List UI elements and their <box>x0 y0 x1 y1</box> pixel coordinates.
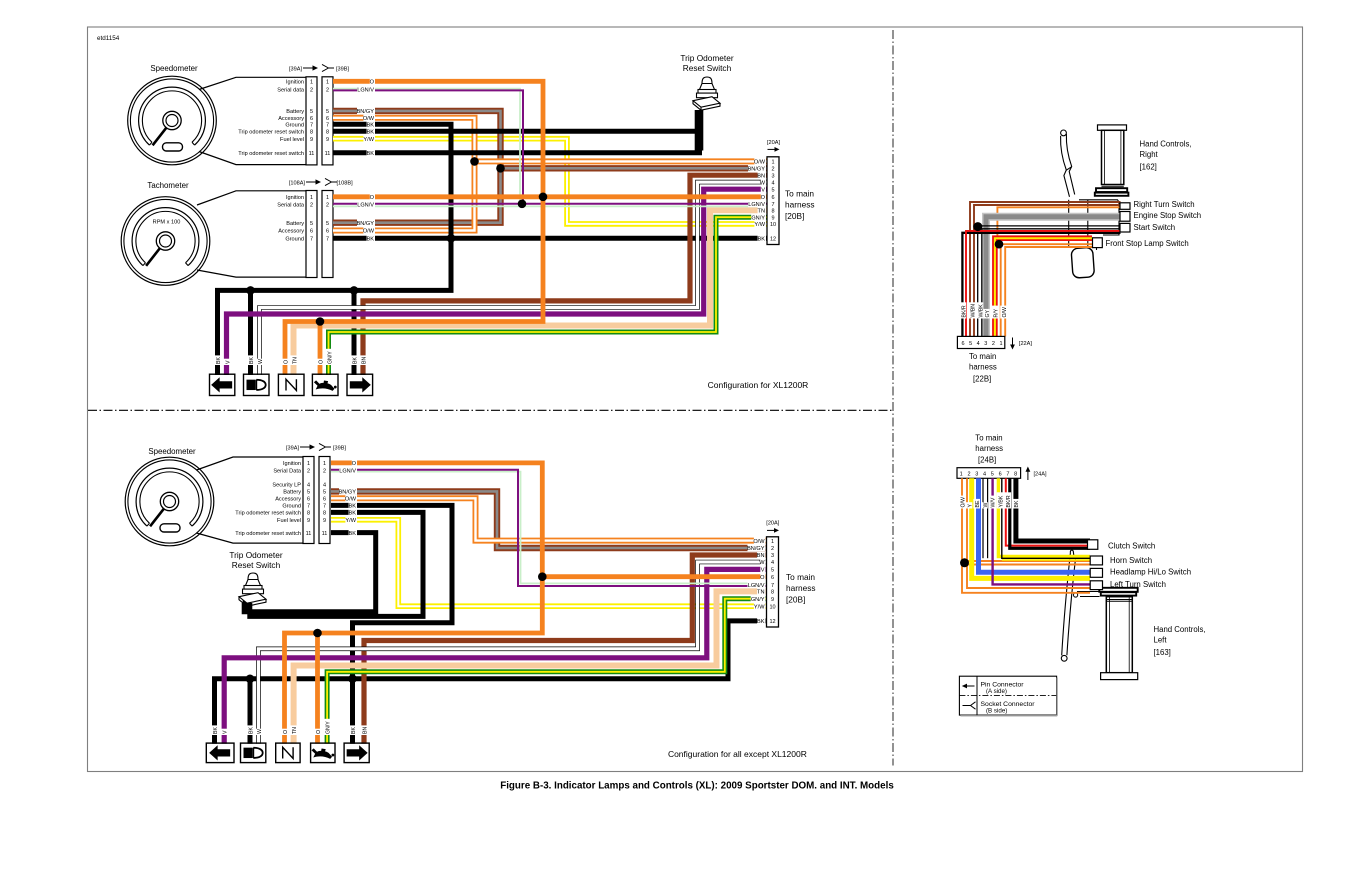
svg-text:BK: BK <box>248 727 254 734</box>
svg-text:[22A]: [22A] <box>1019 341 1033 347</box>
svg-text:Serial data: Serial data <box>277 88 305 94</box>
svg-text:8: 8 <box>771 208 774 214</box>
svg-text:Security LP: Security LP <box>272 483 301 489</box>
svg-text:[162]: [162] <box>1140 163 1157 172</box>
svg-text:2: 2 <box>326 88 329 94</box>
svg-text:10: 10 <box>770 222 776 228</box>
svg-text:[39A]: [39A] <box>286 445 300 451</box>
svg-text:O/W: O/W <box>345 497 357 503</box>
svg-text:Fuel level: Fuel level <box>280 137 304 143</box>
svg-text:Battery: Battery <box>286 109 304 115</box>
svg-text:1: 1 <box>960 472 963 478</box>
svg-text:Headlamp Hi/Lo Switch: Headlamp Hi/Lo Switch <box>1110 567 1191 576</box>
svg-text:V: V <box>223 730 229 734</box>
svg-text:11: 11 <box>322 531 328 537</box>
svg-text:8: 8 <box>307 511 310 517</box>
svg-text:[108B]: [108B] <box>337 180 354 186</box>
svg-text:BK: BK <box>349 504 357 510</box>
svg-text:BK: BK <box>349 511 357 517</box>
svg-text:7: 7 <box>323 504 326 510</box>
svg-text:11: 11 <box>325 151 331 157</box>
svg-text:BK: BK <box>249 357 255 364</box>
svg-text:Ignition: Ignition <box>286 195 304 201</box>
svg-text:Reset Switch: Reset Switch <box>683 63 732 73</box>
svg-text:[108A]: [108A] <box>289 180 306 186</box>
svg-text:Ignition: Ignition <box>283 461 301 467</box>
svg-text:Engine Stop Switch: Engine Stop Switch <box>1134 211 1202 220</box>
svg-text:W: W <box>258 359 264 364</box>
svg-text:Y/W: Y/W <box>363 137 374 143</box>
svg-text:etd1154: etd1154 <box>97 35 120 42</box>
svg-text:8: 8 <box>326 130 329 136</box>
svg-text:O/W: O/W <box>753 539 765 545</box>
svg-text:4: 4 <box>307 483 310 489</box>
svg-text:Accessory: Accessory <box>275 497 301 503</box>
svg-text:Trip odometer reset switch: Trip odometer reset switch <box>238 130 304 136</box>
svg-text:1: 1 <box>771 539 774 545</box>
svg-text:Y: Y <box>967 504 973 508</box>
svg-text:12: 12 <box>770 237 776 243</box>
svg-text:W: W <box>983 503 989 508</box>
svg-text:7: 7 <box>307 504 310 510</box>
svg-text:2: 2 <box>310 203 313 209</box>
svg-text:6: 6 <box>961 341 964 347</box>
svg-text:To main: To main <box>785 189 814 199</box>
svg-text:O: O <box>352 461 357 467</box>
svg-text:To main: To main <box>786 572 815 582</box>
svg-text:BE: BE <box>975 500 981 507</box>
svg-text:8: 8 <box>323 511 326 517</box>
svg-text:O: O <box>370 80 375 86</box>
svg-text:8: 8 <box>771 590 774 596</box>
svg-text:9: 9 <box>323 518 326 524</box>
svg-text:O: O <box>283 730 289 734</box>
svg-text:BK: BK <box>367 237 375 243</box>
svg-text:12: 12 <box>769 619 775 625</box>
svg-text:GN/Y: GN/Y <box>327 351 333 364</box>
svg-text:8: 8 <box>1014 472 1017 478</box>
svg-text:GY: GY <box>985 309 991 317</box>
svg-text:6: 6 <box>307 497 310 503</box>
svg-text:Y/W: Y/W <box>345 518 356 524</box>
svg-text:BK: BK <box>367 151 375 157</box>
svg-text:BN/GY: BN/GY <box>748 167 766 173</box>
svg-text:BN: BN <box>362 727 368 734</box>
svg-text:8: 8 <box>310 130 313 136</box>
svg-text:1: 1 <box>323 461 326 467</box>
svg-text:Y/BK: Y/BK <box>998 495 1004 507</box>
svg-text:Right: Right <box>1140 150 1159 159</box>
svg-text:7: 7 <box>326 123 329 129</box>
svg-text:[20B]: [20B] <box>785 211 804 221</box>
svg-text:BK: BK <box>213 727 219 734</box>
svg-text:5: 5 <box>326 221 329 227</box>
svg-text:7: 7 <box>310 123 313 129</box>
svg-text:2: 2 <box>771 546 774 552</box>
svg-text:BN/GY: BN/GY <box>357 221 375 227</box>
svg-text:Hand Controls,: Hand Controls, <box>1154 625 1206 634</box>
svg-text:5: 5 <box>771 568 774 574</box>
svg-text:W: W <box>759 560 765 566</box>
svg-text:O: O <box>761 195 766 201</box>
svg-text:1: 1 <box>771 160 774 166</box>
svg-text:5: 5 <box>771 187 774 193</box>
svg-text:O/W: O/W <box>960 497 966 507</box>
svg-text:5: 5 <box>323 490 326 496</box>
svg-text:Hand Controls,: Hand Controls, <box>1140 140 1192 149</box>
svg-text:BK: BK <box>216 357 222 364</box>
svg-text:2: 2 <box>307 469 310 475</box>
svg-text:Tachometer: Tachometer <box>147 181 189 190</box>
svg-text:2: 2 <box>310 88 313 94</box>
svg-text:BK: BK <box>351 727 357 734</box>
svg-text:3: 3 <box>771 173 774 179</box>
svg-text:1: 1 <box>310 80 313 86</box>
svg-text:BN: BN <box>757 553 765 559</box>
svg-text:2: 2 <box>326 203 329 209</box>
svg-text:6: 6 <box>326 229 329 235</box>
svg-text:[24B]: [24B] <box>978 456 996 465</box>
svg-text:Y/W: Y/W <box>754 604 765 610</box>
svg-text:[20A]: [20A] <box>767 140 781 146</box>
svg-text:7: 7 <box>326 237 329 243</box>
svg-text:Battery: Battery <box>286 221 304 227</box>
svg-text:7: 7 <box>1006 472 1009 478</box>
svg-text:10: 10 <box>769 604 775 610</box>
svg-text:4: 4 <box>771 180 774 186</box>
svg-text:LGN/V: LGN/V <box>357 203 374 209</box>
svg-text:6: 6 <box>999 472 1002 478</box>
svg-text:Reset Switch: Reset Switch <box>232 560 281 570</box>
svg-text:V: V <box>225 360 231 364</box>
svg-text:9: 9 <box>310 137 313 143</box>
svg-text:BN/GY: BN/GY <box>357 109 375 115</box>
svg-text:5: 5 <box>326 109 329 115</box>
svg-text:5: 5 <box>991 472 994 478</box>
svg-text:[20B]: [20B] <box>786 595 805 605</box>
svg-text:Left Turn Switch: Left Turn Switch <box>1110 580 1166 589</box>
svg-text:V: V <box>761 568 765 574</box>
svg-text:W/BN: W/BN <box>970 304 976 318</box>
svg-text:6: 6 <box>310 229 313 235</box>
svg-text:Trip odometer reset switch: Trip odometer reset switch <box>235 511 301 517</box>
svg-text:5: 5 <box>310 221 313 227</box>
svg-text:BK: BK <box>352 357 358 364</box>
svg-text:6: 6 <box>310 116 313 122</box>
svg-text:(B side): (B side) <box>986 708 1007 715</box>
svg-text:11: 11 <box>309 151 315 157</box>
svg-text:[39A]: [39A] <box>289 66 303 72</box>
svg-text:5: 5 <box>969 341 972 347</box>
svg-text:W/V: W/V <box>991 497 997 507</box>
svg-text:Clutch Switch: Clutch Switch <box>1108 542 1155 551</box>
svg-text:4: 4 <box>771 560 774 566</box>
svg-text:Ignition: Ignition <box>286 80 304 86</box>
svg-text:O/W: O/W <box>1002 307 1008 317</box>
svg-text:Speedometer: Speedometer <box>148 447 196 456</box>
svg-text:1: 1 <box>307 461 310 467</box>
svg-text:Speedometer: Speedometer <box>150 64 198 73</box>
svg-text:BK: BK <box>367 123 375 129</box>
svg-text:TN: TN <box>292 727 298 734</box>
svg-text:[39B]: [39B] <box>336 66 350 72</box>
svg-text:6: 6 <box>771 575 774 581</box>
svg-text:BN: BN <box>362 357 368 364</box>
svg-text:Trip odometer reset switch: Trip odometer reset switch <box>238 151 304 157</box>
svg-text:BN/GY: BN/GY <box>747 546 765 552</box>
svg-text:Ground: Ground <box>285 123 304 129</box>
svg-text:4: 4 <box>323 483 326 489</box>
svg-text:9: 9 <box>771 597 774 603</box>
svg-text:6: 6 <box>323 497 326 503</box>
svg-text:Start Switch: Start Switch <box>1134 223 1176 232</box>
svg-text:BK: BK <box>349 531 357 537</box>
svg-text:BK: BK <box>1014 500 1020 507</box>
svg-text:LGN/V: LGN/V <box>357 88 374 94</box>
svg-text:3: 3 <box>771 553 774 559</box>
svg-text:9: 9 <box>307 518 310 524</box>
svg-text:To main: To main <box>969 352 996 361</box>
svg-text:Ground: Ground <box>285 237 304 243</box>
svg-text:Trip Odometer: Trip Odometer <box>680 53 733 63</box>
svg-text:BK/R: BK/R <box>1006 495 1012 507</box>
svg-text:RPM x 100: RPM x 100 <box>153 220 181 226</box>
svg-text:[163]: [163] <box>1154 648 1171 657</box>
svg-text:Accessory: Accessory <box>278 116 304 122</box>
svg-text:2: 2 <box>771 167 774 173</box>
svg-text:4: 4 <box>977 341 980 347</box>
svg-text:O: O <box>370 195 375 201</box>
svg-text:harness: harness <box>786 583 816 593</box>
svg-text:harness: harness <box>975 444 1003 453</box>
svg-text:O/W: O/W <box>754 160 766 166</box>
svg-text:11: 11 <box>306 531 312 537</box>
svg-text:Ground: Ground <box>282 504 301 510</box>
svg-text:BK: BK <box>367 130 375 136</box>
svg-text:BK: BK <box>758 237 766 243</box>
svg-text:harness: harness <box>785 200 815 210</box>
svg-text:Figure B-3. Indicator Lamps an: Figure B-3. Indicator Lamps and Controls… <box>500 781 894 792</box>
svg-text:Battery: Battery <box>283 490 301 496</box>
svg-text:Serial Data: Serial Data <box>273 469 302 475</box>
svg-text:[39B]: [39B] <box>333 445 347 451</box>
svg-text:LGN/V: LGN/V <box>748 583 765 589</box>
svg-text:Trip odometer reset switch: Trip odometer reset switch <box>235 531 301 537</box>
svg-text:6: 6 <box>771 195 774 201</box>
svg-text:1: 1 <box>999 341 1002 347</box>
svg-text:Y/W: Y/W <box>754 222 765 228</box>
svg-text:Left: Left <box>1154 636 1168 645</box>
svg-text:9: 9 <box>326 137 329 143</box>
svg-text:[24A]: [24A] <box>1034 472 1048 478</box>
svg-text:harness: harness <box>969 363 997 372</box>
svg-text:[20A]: [20A] <box>766 521 780 527</box>
svg-text:O: O <box>316 730 322 734</box>
svg-text:To main: To main <box>975 434 1002 443</box>
svg-text:Configuration for all except X: Configuration for all except XL1200R <box>668 749 807 759</box>
svg-text:R/Y: R/Y <box>993 308 999 317</box>
svg-text:(A side): (A side) <box>986 688 1007 695</box>
svg-text:W: W <box>760 180 766 186</box>
svg-text:7: 7 <box>771 202 774 208</box>
svg-text:Accessory: Accessory <box>278 229 304 235</box>
svg-text:Front Stop Lamp Switch: Front Stop Lamp Switch <box>1106 239 1189 248</box>
svg-text:BN: BN <box>757 173 765 179</box>
svg-text:2: 2 <box>323 469 326 475</box>
svg-text:1: 1 <box>310 195 313 201</box>
svg-text:2: 2 <box>967 472 970 478</box>
svg-text:O: O <box>318 360 324 364</box>
svg-text:GN/Y: GN/Y <box>751 597 765 603</box>
svg-text:Right Turn Switch: Right Turn Switch <box>1134 200 1195 209</box>
svg-text:BN/GY: BN/GY <box>339 490 357 496</box>
svg-text:BK/R: BK/R <box>961 305 967 317</box>
svg-text:6: 6 <box>326 116 329 122</box>
svg-text:Horn Switch: Horn Switch <box>1110 556 1152 565</box>
svg-text:BK: BK <box>757 619 765 625</box>
svg-text:5: 5 <box>307 490 310 496</box>
svg-text:TN: TN <box>757 590 764 596</box>
svg-text:3: 3 <box>975 472 978 478</box>
svg-text:4: 4 <box>983 472 986 478</box>
svg-text:GN/Y: GN/Y <box>326 721 332 734</box>
svg-text:O: O <box>283 360 289 364</box>
svg-text:[22B]: [22B] <box>973 375 991 384</box>
svg-text:LGN/V: LGN/V <box>339 469 356 475</box>
svg-text:Serial data: Serial data <box>277 203 305 209</box>
svg-text:5: 5 <box>310 109 313 115</box>
svg-text:W: W <box>257 729 263 734</box>
svg-text:1: 1 <box>326 80 329 86</box>
svg-text:TN: TN <box>292 357 298 364</box>
svg-text:Trip Odometer: Trip Odometer <box>229 550 282 560</box>
svg-text:9: 9 <box>771 215 774 221</box>
svg-text:7: 7 <box>310 237 313 243</box>
svg-text:1: 1 <box>326 195 329 201</box>
svg-text:3: 3 <box>984 341 987 347</box>
svg-text:2: 2 <box>992 341 995 347</box>
svg-text:TN: TN <box>758 208 765 214</box>
svg-text:Fuel level: Fuel level <box>277 518 301 524</box>
svg-text:7: 7 <box>771 583 774 589</box>
svg-text:O: O <box>760 575 765 581</box>
svg-text:O/W: O/W <box>363 229 375 235</box>
svg-text:V: V <box>761 187 765 193</box>
svg-text:Configuration for XL1200R: Configuration for XL1200R <box>708 380 809 390</box>
